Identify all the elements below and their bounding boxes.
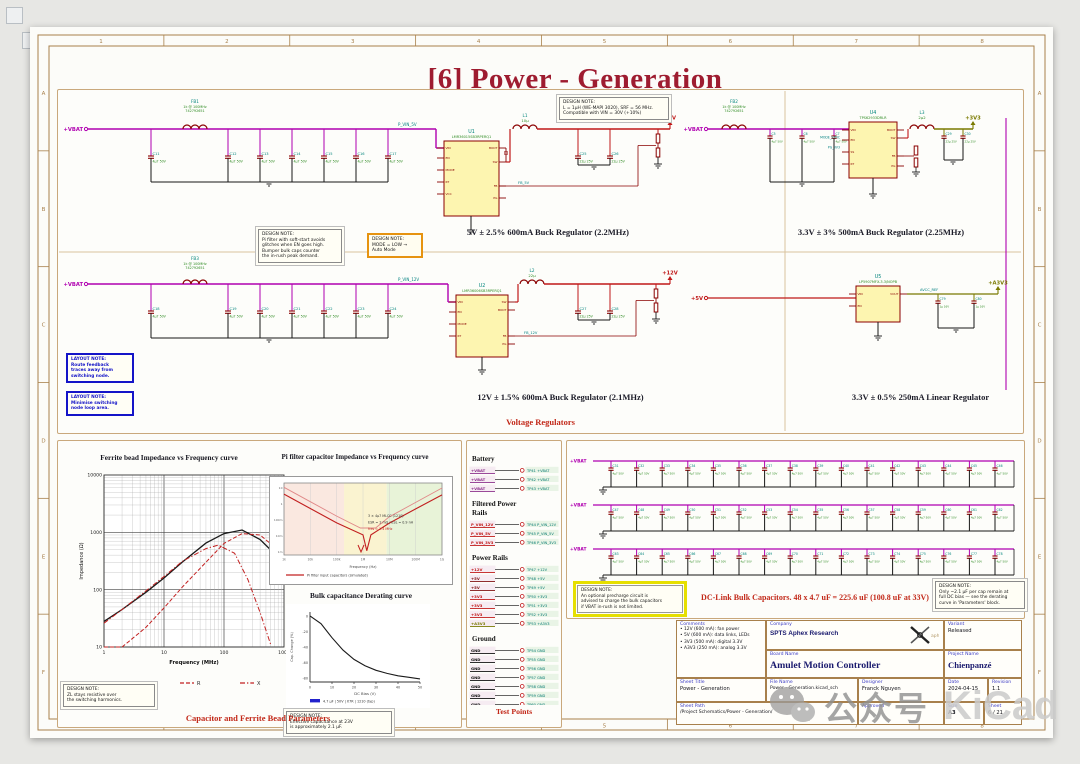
- svg-text:C17: C17: [390, 152, 397, 156]
- svg-text:4µ7 50V: 4µ7 50V: [766, 516, 777, 520]
- svg-text:+12V: +12V: [471, 567, 482, 572]
- svg-text:F: F: [42, 670, 45, 676]
- svg-text:4µ7 50V: 4µ7 50V: [945, 516, 956, 520]
- svg-text:C52: C52: [741, 508, 747, 512]
- svg-text:100: 100: [220, 650, 229, 656]
- svg-text:2: 2: [225, 39, 229, 45]
- test-point-row: +VBATTP42 +VBAT: [470, 476, 559, 483]
- svg-text:C46: C46: [997, 464, 1003, 468]
- svg-text:C47: C47: [613, 508, 619, 512]
- svg-text:4µ7 50V: 4µ7 50V: [741, 560, 752, 564]
- svg-text:C5: C5: [772, 132, 776, 136]
- svg-text:4µ7 50V: 4µ7 50V: [971, 472, 982, 476]
- svg-text:C54: C54: [792, 508, 798, 512]
- svg-text:C34: C34: [689, 464, 695, 468]
- svg-text:4µ7 50V: 4µ7 50V: [664, 516, 675, 520]
- svg-text:+VBAT: +VBAT: [570, 459, 586, 465]
- svg-text:RT: RT: [446, 180, 450, 184]
- svg-text:+3V3: +3V3: [471, 603, 483, 608]
- svg-text:VIN: VIN: [458, 300, 463, 304]
- svg-text:4µ7 50V: 4µ7 50V: [326, 315, 340, 319]
- svg-text:Battery: Battery: [472, 455, 495, 463]
- svg-text:C77: C77: [971, 552, 977, 556]
- svg-text:C79: C79: [940, 297, 946, 301]
- svg-text:4µ7 50V: 4µ7 50V: [262, 315, 276, 319]
- svg-text:TP55 GND: TP55 GND: [526, 658, 546, 662]
- svg-text:4µ7 50V: 4µ7 50V: [689, 472, 700, 476]
- svg-text:4µ7 50V: 4µ7 50V: [230, 160, 244, 164]
- svg-text:C69: C69: [766, 552, 772, 556]
- svg-text:BOOT: BOOT: [887, 128, 896, 132]
- regulators-schematic: +VBATFB11k @ 100MHz742792651C114µ7 50VC1…: [58, 90, 1021, 431]
- svg-text:4µ7 50V: 4µ7 50V: [843, 560, 854, 564]
- svg-text:+12V: +12V: [662, 271, 678, 277]
- svg-text:TPS62933DRLR: TPS62933DRLR: [858, 116, 887, 120]
- svg-text:C80: C80: [976, 297, 982, 301]
- test-point-group: Power Rails+12VTP47 +12V+5VTP48 +5V+5VTP…: [470, 554, 559, 626]
- caption-parameters: Capacitor and Ferrite Bead Parameters: [118, 713, 398, 723]
- svg-text:C27: C27: [580, 307, 587, 311]
- svg-text:MODE_SYNC: MODE_SYNC: [820, 136, 841, 140]
- title-block: Comments • 12V (600 mA): fan power• 5V (…: [676, 620, 1022, 725]
- tb-project-name: Project Name Chienpanzé: [944, 650, 1022, 678]
- svg-text:10M: 10M: [386, 558, 393, 562]
- svg-text:C70: C70: [792, 552, 798, 556]
- svg-text:1k @ 100MHz: 1k @ 100MHz: [183, 105, 207, 109]
- svg-text:4µ7 50V: 4µ7 50V: [638, 560, 649, 564]
- svg-text:+VBAT: +VBAT: [684, 127, 704, 133]
- svg-text:C48: C48: [638, 508, 644, 512]
- tb-date: Date 2024-04-15: [944, 678, 988, 702]
- svg-text:BOOT: BOOT: [498, 308, 507, 312]
- svg-text:C60: C60: [945, 508, 951, 512]
- svg-text:4µ7 50V: 4µ7 50V: [230, 315, 244, 319]
- svg-text:GND: GND: [471, 675, 480, 680]
- caption-buck-12v: 12V ± 1.5% 600mA Buck Regulator (2.1MHz): [403, 392, 718, 402]
- viewer-button-icon[interactable]: [6, 7, 23, 24]
- svg-text:+VBAT: +VBAT: [570, 503, 586, 509]
- svg-text:C61: C61: [971, 508, 977, 512]
- svg-text:C64: C64: [638, 552, 644, 556]
- svg-text:C65: C65: [664, 552, 670, 556]
- svg-text:fres ≈ 1.4 MHz: fres ≈ 1.4 MHz: [368, 527, 393, 531]
- svg-text:C32: C32: [638, 464, 644, 468]
- dclink-row: +VBATC314µ7 50VC324µ7 50VC334µ7 50VC344µ…: [570, 459, 1014, 494]
- test-point-row: +3V3TP51 +3V3: [470, 602, 559, 609]
- svg-text:8: 8: [980, 39, 984, 45]
- svg-text:4µ7 50V: 4µ7 50V: [262, 160, 276, 164]
- layout-note: LAYOUT NOTE:Route feedbacktraces away fr…: [66, 353, 134, 383]
- svg-text:4µ7 50V: 4µ7 50V: [894, 516, 905, 520]
- layout-note: LAYOUT NOTE:Minimise switchingnode loop …: [66, 391, 134, 416]
- svg-text:FB_5V: FB_5V: [518, 181, 530, 185]
- caption-voltage-regulators: Voltage Regulators: [58, 417, 1023, 427]
- test-point-row: +5VTP48 +5V: [470, 575, 559, 582]
- tb-sheet-number: Sheet 6 / 21: [984, 702, 1022, 725]
- svg-text:U4: U4: [870, 110, 877, 116]
- svg-text:C25: C25: [580, 152, 587, 156]
- svg-text:TP51 +3V3: TP51 +3V3: [526, 604, 547, 608]
- svg-text:FB2: FB2: [730, 99, 738, 104]
- caption-buck-3v3: 3.3V ± 3% 500mA Buck Regulator (2.25MHz): [748, 227, 1014, 237]
- svg-text:R: R: [197, 681, 201, 687]
- svg-text:C26: C26: [612, 152, 620, 156]
- svg-text:FB3: FB3: [191, 256, 199, 261]
- svg-text:1: 1: [103, 650, 106, 656]
- svg-text:4µ7 50V: 4µ7 50V: [869, 516, 880, 520]
- svg-text:U1: U1: [468, 129, 475, 135]
- svg-text:4µ7 50V: 4µ7 50V: [390, 315, 404, 319]
- svg-text:TP46 P_VIN_3V3: TP46 P_VIN_3V3: [526, 541, 556, 545]
- svg-text:4µ7 50V: 4µ7 50V: [945, 560, 956, 564]
- svg-text:6: 6: [729, 39, 733, 45]
- svg-text:TP59 GND: TP59 GND: [526, 694, 546, 698]
- svg-text:C28: C28: [612, 307, 620, 311]
- svg-text:4µ7 50V: 4µ7 50V: [920, 472, 931, 476]
- svg-text:+A3V3: +A3V3: [988, 281, 1008, 287]
- svg-text:Cap. Change (%): Cap. Change (%): [290, 632, 294, 662]
- svg-text:A: A: [42, 91, 46, 97]
- svg-text:50: 50: [418, 686, 422, 690]
- test-point-group: Filtered PowerRailsP_VIN_12VTP44 P_VIN_1…: [470, 500, 559, 545]
- svg-text:22µ 25V: 22µ 25V: [580, 160, 594, 164]
- svg-text:P_VIN_5V: P_VIN_5V: [471, 531, 491, 536]
- svg-text:+A3V3: +A3V3: [471, 621, 486, 626]
- svg-text:4µ7 50V: 4µ7 50V: [664, 472, 675, 476]
- svg-text:Pi filter input capacitors (si: Pi filter input capacitors (simulated): [307, 574, 368, 578]
- svg-text:DC Bias (V): DC Bias (V): [354, 691, 376, 696]
- svg-text:C66: C66: [689, 552, 695, 556]
- svg-text:Impedance (Ω): Impedance (Ω): [79, 542, 85, 579]
- svg-text:EN: EN: [446, 156, 450, 160]
- svg-text:C58: C58: [894, 508, 900, 512]
- svg-text:10: 10: [330, 686, 334, 690]
- svg-text:C55: C55: [817, 508, 823, 512]
- svg-text:C20: C20: [262, 307, 270, 311]
- svg-text:C57: C57: [869, 508, 875, 512]
- schematic-sheet: 1122334455667788AABBCCDDEEFF [6] Power -…: [30, 27, 1053, 738]
- chart-title-ferrite: Ferrite bead Impedance vs Frequency curv…: [60, 453, 278, 462]
- svg-text:4µ7 50V: 4µ7 50V: [390, 160, 404, 164]
- dclink-block: +VBATC314µ7 50VC324µ7 50VC334µ7 50VC344µ…: [566, 440, 1025, 619]
- svg-text:TP54 GND: TP54 GND: [526, 649, 546, 653]
- svg-text:1000: 1000: [90, 530, 102, 536]
- svg-text:1M: 1M: [361, 558, 366, 562]
- svg-text:C44: C44: [945, 464, 951, 468]
- svg-text:D: D: [1037, 438, 1041, 444]
- svg-text:PG: PG: [502, 342, 507, 346]
- tb-board-name: Board Name Amulet Motion Controller: [766, 650, 944, 678]
- svg-text:C42: C42: [894, 464, 900, 468]
- svg-text:GND: GND: [471, 693, 480, 698]
- svg-text:TP57 GND: TP57 GND: [526, 676, 546, 680]
- svg-text:4µ7 50V: 4µ7 50V: [326, 160, 340, 164]
- svg-text:4µ7 50V: 4µ7 50V: [997, 516, 1008, 520]
- tb-approved: Approved: [858, 702, 944, 725]
- svg-text:1: 1: [281, 502, 283, 506]
- svg-text:C40: C40: [843, 464, 849, 468]
- svg-text:TP47 +12V: TP47 +12V: [526, 568, 548, 572]
- svg-text:P_VIN_5V: P_VIN_5V: [398, 122, 417, 127]
- test-point-row: GNDTP59 GND: [470, 692, 559, 699]
- svg-text:C49: C49: [664, 508, 670, 512]
- svg-text:EN: EN: [858, 304, 862, 308]
- svg-text:-80: -80: [302, 677, 308, 681]
- svg-text:C31: C31: [613, 464, 619, 468]
- tb-variant: Variant Released: [944, 620, 1022, 650]
- svg-text:PG_3V3: PG_3V3: [828, 146, 840, 150]
- svg-text:4µ7 50V: 4µ7 50V: [997, 472, 1008, 476]
- test-point-row: +A3V3TP53 +A3V3: [470, 620, 559, 627]
- svg-text:4µ7 50V: 4µ7 50V: [689, 560, 700, 564]
- svg-text:BOOT: BOOT: [489, 146, 498, 150]
- ldo-section: +5VU5LP5907MFX-3.3/NOPBVINENVOUTAVCC_REF…: [691, 274, 1008, 340]
- parameters-block: Ferrite bead Impedance vs Frequency curv…: [57, 440, 462, 728]
- svg-text:FB_12V: FB_12V: [524, 331, 538, 335]
- svg-text:-40: -40: [302, 645, 308, 649]
- svg-text:TP58 GND: TP58 GND: [526, 685, 546, 689]
- svg-text:5: 5: [603, 724, 607, 730]
- svg-text:C37: C37: [766, 464, 772, 468]
- svg-text:4µ7 50V: 4µ7 50V: [715, 516, 726, 520]
- svg-text:C33: C33: [664, 464, 670, 468]
- tb-designer: Designer Franck Nguyen: [858, 678, 944, 702]
- svg-text:22µ 25V: 22µ 25V: [965, 140, 976, 144]
- test-point-row: GNDTP54 GND: [470, 647, 559, 654]
- svg-text:1k: 1k: [282, 558, 286, 562]
- svg-text:4µ7 50V: 4µ7 50V: [741, 516, 752, 520]
- tb-sheet-path: Sheet Path /Project Schematics/Power - G…: [676, 702, 858, 725]
- svg-text:-20: -20: [302, 630, 308, 634]
- chart-title-pi: Pi filter capacitor Impedance vs Frequen…: [251, 453, 459, 461]
- svg-text:4µ7 50V: 4µ7 50V: [971, 516, 982, 520]
- svg-text:0: 0: [306, 614, 308, 618]
- svg-text:20: 20: [352, 686, 356, 690]
- test-point-group: GroundGNDTP54 GNDGNDTP55 GNDGNDTP56 GNDG…: [470, 635, 559, 705]
- svg-text:4µ7 50V: 4µ7 50V: [638, 516, 649, 520]
- svg-text:B: B: [42, 207, 46, 213]
- svg-text:4µ7 50V: 4µ7 50V: [638, 472, 649, 476]
- svg-text:4.7 µF | 50V | X7R | 1210 (typ: 4.7 µF | 50V | X7R | 1210 (typ): [323, 699, 375, 703]
- svg-text:VOUT: VOUT: [890, 292, 899, 296]
- svg-text:C: C: [1038, 323, 1042, 329]
- test-points-list: Battery+VBATTP41 +VBAT+VBATTP42 +VBAT+VB…: [467, 441, 559, 705]
- svg-text:742792651: 742792651: [185, 109, 204, 113]
- svg-text:4µ7 50V: 4µ7 50V: [153, 160, 167, 164]
- test-point-row: GNDTP55 GND: [470, 656, 559, 663]
- svg-text:Power Rails: Power Rails: [472, 554, 508, 562]
- test-point-row: P_VIN_3V3TP46 P_VIN_3V3: [470, 539, 559, 546]
- svg-text:F: F: [1038, 670, 1041, 676]
- svg-text:22µ 25V: 22µ 25V: [580, 315, 594, 319]
- svg-text:TP56 GND: TP56 GND: [526, 667, 546, 671]
- svg-text:C53: C53: [766, 508, 772, 512]
- tb-size: Size A3: [944, 702, 984, 725]
- tb-company: Company SPTS Aphex Research aphex: [766, 620, 944, 650]
- svg-text:C39: C39: [817, 464, 823, 468]
- svg-text:TP45 P_VIN_5V: TP45 P_VIN_5V: [526, 532, 554, 536]
- svg-text:+VBAT: +VBAT: [64, 282, 84, 288]
- svg-text:4µ7 50V: 4µ7 50V: [613, 560, 624, 564]
- svg-text:4µ7 50V: 4µ7 50V: [294, 160, 308, 164]
- svg-text:100M: 100M: [411, 558, 420, 562]
- svg-text:1m: 1m: [278, 550, 283, 554]
- svg-text:RT: RT: [851, 162, 855, 166]
- svg-text:Frequency (MHz): Frequency (MHz): [169, 660, 218, 666]
- svg-text:TP49 +5V: TP49 +5V: [526, 586, 545, 590]
- svg-text:C62: C62: [997, 508, 1003, 512]
- test-point-group: Battery+VBATTP41 +VBAT+VBATTP42 +VBAT+VB…: [470, 455, 559, 491]
- svg-text:C: C: [42, 323, 46, 329]
- svg-text:TP48 +5V: TP48 +5V: [526, 577, 545, 581]
- svg-text:C22: C22: [326, 307, 333, 311]
- svg-text:3 × 4µ7 MLCC (1210): 3 × 4µ7 MLCC (1210): [368, 514, 404, 518]
- svg-text:U2: U2: [479, 283, 486, 289]
- svg-text:SW: SW: [493, 160, 498, 164]
- svg-text:10m: 10m: [276, 534, 283, 538]
- voltage-regulators-block: +VBATFB11k @ 100MHz742792651C114µ7 50VC1…: [57, 89, 1024, 434]
- svg-text:C23: C23: [358, 307, 365, 311]
- svg-text:D: D: [41, 438, 45, 444]
- svg-text:+3V3: +3V3: [965, 116, 981, 122]
- test-point-row: GNDTP56 GND: [470, 665, 559, 672]
- svg-text:10: 10: [96, 645, 102, 651]
- svg-text:10: 10: [279, 486, 283, 490]
- svg-text:TP53 +A3V3: TP53 +A3V3: [526, 622, 550, 626]
- svg-text:SS: SS: [851, 150, 855, 154]
- svg-text:22µ 25V: 22µ 25V: [612, 315, 626, 319]
- svg-text:10000: 10000: [87, 473, 102, 479]
- design-note-precharge: DESIGN NOTE:An optional precharge circui…: [573, 581, 687, 617]
- design-note: DESIGN NOTE:Pi filter with soft-start av…: [258, 229, 342, 263]
- svg-text:+VBAT: +VBAT: [471, 477, 486, 482]
- svg-text:+5V: +5V: [471, 585, 480, 590]
- test-point-row: P_VIN_5VTP45 P_VIN_5V: [470, 530, 559, 537]
- svg-text:C71: C71: [817, 552, 823, 556]
- svg-text:Ground: Ground: [472, 635, 496, 643]
- svg-text:100m: 100m: [274, 518, 283, 522]
- buck-3v3-section: +VBATFB21k @ 100MHz742792651C54µ7 50VC64…: [684, 99, 982, 198]
- svg-text:C24: C24: [390, 307, 398, 311]
- svg-text:LP5907MFX-3.3/NOPB: LP5907MFX-3.3/NOPB: [859, 280, 898, 284]
- svg-text:10: 10: [161, 650, 167, 656]
- svg-text:GND: GND: [471, 702, 480, 705]
- dclink-row: +VBATC634µ7 50VC644µ7 50VC654µ7 50VC664µ…: [570, 547, 1014, 582]
- svg-text:4µ7 50V: 4µ7 50V: [715, 472, 726, 476]
- svg-text:4µ7 50V: 4µ7 50V: [792, 560, 803, 564]
- svg-text:C30: C30: [965, 132, 971, 136]
- svg-text:PG: PG: [891, 164, 896, 168]
- test-point-row: +3V3TP50 +3V3: [470, 593, 559, 600]
- svg-text:4µ7 50V: 4µ7 50V: [613, 516, 624, 520]
- svg-text:4µ7 50V: 4µ7 50V: [971, 560, 982, 564]
- svg-text:VIN: VIN: [858, 292, 863, 296]
- svg-text:C14: C14: [294, 152, 302, 156]
- svg-text:VIN: VIN: [851, 128, 856, 132]
- svg-text:2µ2: 2µ2: [918, 115, 926, 120]
- svg-text:C45: C45: [971, 464, 977, 468]
- svg-text:4µ7 50V: 4µ7 50V: [766, 472, 777, 476]
- svg-text:742792651: 742792651: [185, 266, 204, 270]
- svg-text:4µ7 50V: 4µ7 50V: [804, 140, 815, 144]
- svg-text:1µ 16V: 1µ 16V: [940, 305, 950, 309]
- svg-text:Frequency (Hz): Frequency (Hz): [349, 565, 377, 569]
- svg-text:P_VIN_12V: P_VIN_12V: [471, 522, 493, 527]
- test-point-row: GNDTP58 GND: [470, 683, 559, 690]
- tb-sheet-title: Sheet Title Power - Generation: [676, 678, 766, 702]
- svg-text:3: 3: [351, 39, 355, 45]
- svg-text:1k @ 100MHz: 1k @ 100MHz: [722, 105, 746, 109]
- svg-text:4µ7 50V: 4µ7 50V: [358, 315, 372, 319]
- test-point-row: +VBATTP43 +VBAT: [470, 485, 559, 492]
- svg-text:4µ7 50V: 4µ7 50V: [689, 516, 700, 520]
- svg-text:C67: C67: [715, 552, 721, 556]
- svg-text:+5V: +5V: [691, 296, 703, 302]
- svg-text:C74: C74: [894, 552, 900, 556]
- svg-text:+VBAT: +VBAT: [471, 468, 486, 473]
- test-point-row: +12VTP47 +12V: [470, 566, 559, 573]
- svg-text:4µ7 50V: 4µ7 50V: [894, 472, 905, 476]
- svg-text:40: 40: [396, 686, 400, 690]
- svg-text:FB: FB: [892, 154, 896, 158]
- svg-text:C63: C63: [613, 552, 619, 556]
- svg-text:P_VIN_3V3: P_VIN_3V3: [471, 540, 494, 545]
- svg-text:10k: 10k: [307, 558, 313, 562]
- caption-buck-5v: 5V ± 2.5% 600mA Buck Regulator (2.2MHz): [388, 227, 708, 237]
- svg-text:0: 0: [309, 686, 311, 690]
- svg-text:4µ7 50V: 4µ7 50V: [817, 472, 828, 476]
- svg-text:GND: GND: [471, 666, 480, 671]
- svg-text:4µ7 50V: 4µ7 50V: [664, 560, 675, 564]
- svg-text:P_VIN_12V: P_VIN_12V: [398, 277, 419, 282]
- svg-text:5: 5: [603, 39, 607, 45]
- svg-text:C19: C19: [230, 307, 238, 311]
- svg-text:RT: RT: [458, 334, 462, 338]
- chart-title-derating: Bulk capacitance Derating curve: [266, 591, 456, 600]
- dclink-schematic: +VBATC314µ7 50VC324µ7 50VC334µ7 50VC344µ…: [567, 441, 1022, 583]
- svg-text:Filtered Power: Filtered Power: [472, 500, 516, 508]
- caption-dclink: DC-Link Bulk Capacitors. 48 x 4.7 uF = 2…: [675, 593, 955, 602]
- test-points-block: Battery+VBATTP41 +VBAT+VBATTP42 +VBAT+VB…: [466, 440, 562, 728]
- svg-text:4µ7 50V: 4µ7 50V: [843, 472, 854, 476]
- svg-text:C51: C51: [715, 508, 721, 512]
- svg-text:+5V: +5V: [471, 576, 480, 581]
- caption-ldo: 3.3V ± 0.5% 250mA Linear Regulator: [788, 392, 1053, 402]
- tb-comments: Comments • 12V (600 mA): fan power• 5V (…: [676, 620, 766, 678]
- ferrite-impedance-chart: 101001000100001101001000Frequency (MHz)I…: [74, 469, 292, 703]
- test-point-row: +3V3TP52 +3V3: [470, 611, 559, 618]
- svg-text:4µ7 50V: 4µ7 50V: [817, 516, 828, 520]
- svg-text:MODE: MODE: [458, 322, 467, 326]
- svg-text:22µ: 22µ: [528, 273, 536, 278]
- svg-text:4µ7 50V: 4µ7 50V: [613, 472, 624, 476]
- svg-text:C35: C35: [715, 464, 721, 468]
- test-point-row: +5VTP49 +5V: [470, 584, 559, 591]
- svg-text:TP43 +VBAT: TP43 +VBAT: [526, 487, 550, 491]
- svg-text:+VBAT: +VBAT: [64, 127, 84, 133]
- pi-filter-chart: 3 × 4µ7 MLCC (1210)ESR ≈ 2 mΩ / ESL ≈ 0.…: [270, 477, 452, 584]
- caption-test-points: Test Points: [467, 707, 561, 716]
- svg-text:4µ7 50V: 4µ7 50V: [715, 560, 726, 564]
- svg-text:+VBAT: +VBAT: [570, 547, 586, 553]
- svg-text:C21: C21: [294, 307, 301, 311]
- svg-text:7: 7: [854, 39, 858, 45]
- tb-file-name: File Name Power - Generation.kicad_sch: [766, 678, 858, 702]
- svg-text:U5: U5: [875, 274, 882, 280]
- svg-text:4µ7 50V: 4µ7 50V: [358, 160, 372, 164]
- svg-text:+VBAT: +VBAT: [471, 486, 486, 491]
- svg-text:1µ 16V: 1µ 16V: [976, 305, 986, 309]
